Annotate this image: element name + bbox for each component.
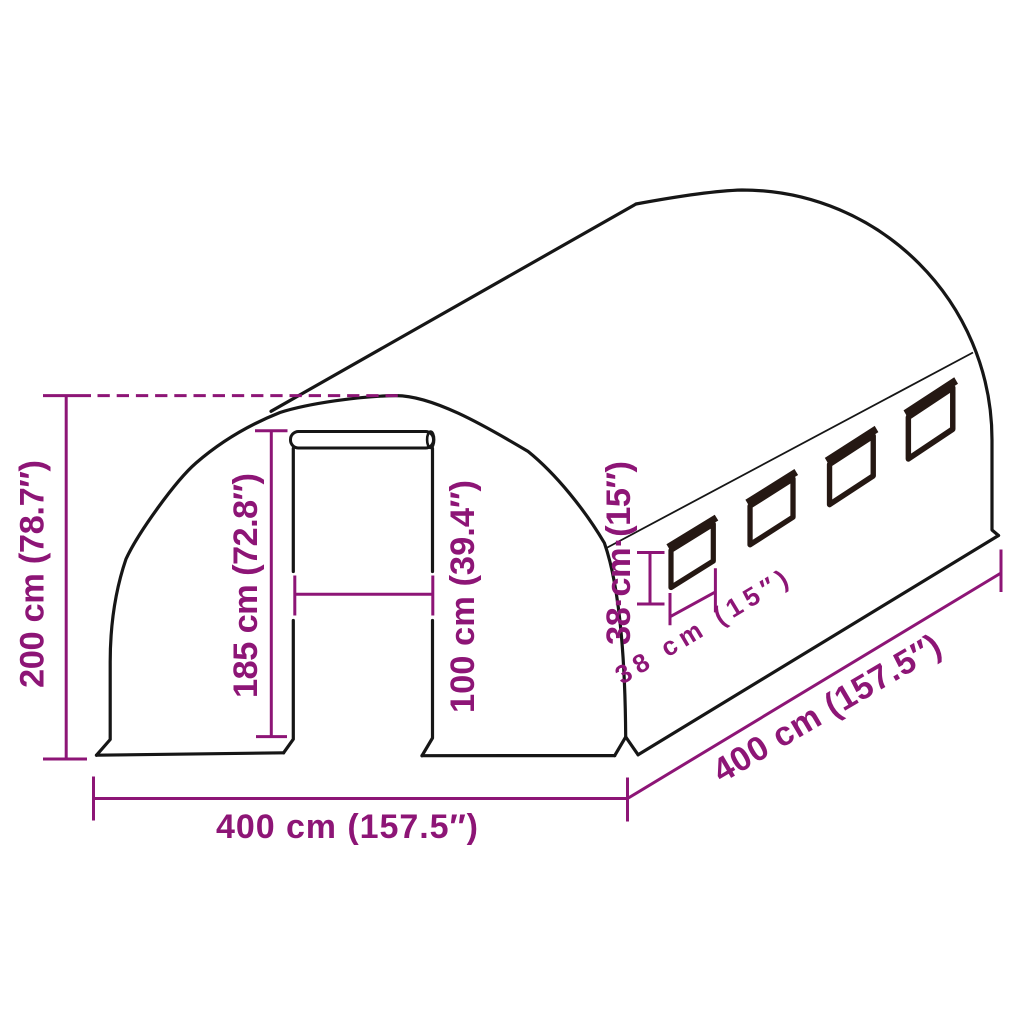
- svg-text:185 cm (72.8″): 185 cm (72.8″): [227, 473, 265, 698]
- svg-text:38·cm·(15″): 38·cm·(15″): [600, 461, 638, 645]
- svg-text:100 cm (39.4″): 100 cm (39.4″): [444, 480, 482, 713]
- svg-text:400 cm (157.5″): 400 cm (157.5″): [216, 808, 478, 846]
- svg-text:200 cm (78.7″): 200 cm (78.7″): [14, 460, 52, 688]
